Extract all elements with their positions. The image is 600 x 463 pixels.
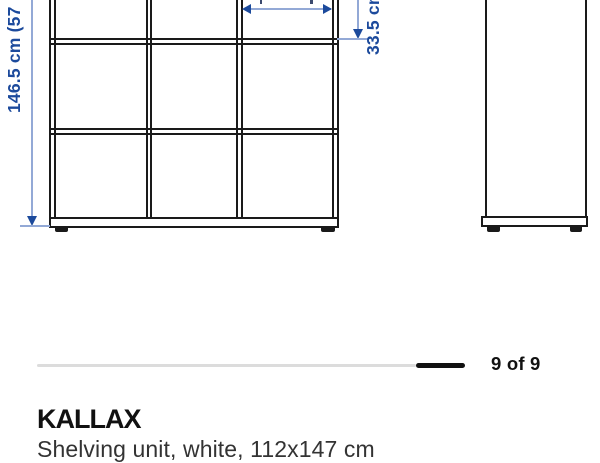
height-dimension-line bbox=[31, 0, 33, 221]
side-left-foot bbox=[487, 227, 500, 232]
height-dimension-label: 146.5 cm (57 ⅝ bbox=[4, 0, 25, 113]
front-column-divider-line bbox=[146, 0, 152, 219]
arrow-left-icon bbox=[242, 4, 251, 14]
side-panel-outline bbox=[485, 0, 587, 218]
side-right-foot bbox=[570, 227, 582, 232]
front-left-edge-line bbox=[49, 0, 56, 219]
progress-track bbox=[37, 364, 416, 367]
product-dimension-image[interactable]: 146.5 cm (57 ⅝ 33.5 cm bbox=[0, 0, 600, 340]
cropped-text-remnant bbox=[260, 0, 262, 4]
progress-active-segment bbox=[416, 363, 465, 368]
cropped-text-remnant bbox=[310, 0, 313, 4]
front-shelf-line bbox=[49, 38, 339, 45]
product-title: KALLAX bbox=[37, 404, 141, 435]
front-column-divider-line bbox=[236, 0, 243, 219]
front-right-foot bbox=[321, 227, 335, 232]
front-right-edge-line bbox=[332, 0, 339, 219]
front-left-foot bbox=[55, 227, 68, 232]
side-base-plinth bbox=[481, 216, 588, 227]
cell-width-dimension-line bbox=[245, 8, 331, 10]
arrow-right-icon bbox=[323, 4, 332, 14]
front-shelf-line bbox=[49, 128, 339, 135]
front-base-plinth bbox=[49, 217, 339, 228]
depth-dimension-line bbox=[357, 0, 359, 30]
height-dimension-tick bbox=[20, 225, 50, 227]
page-count-label: 9 of 9 bbox=[491, 353, 541, 375]
depth-dimension-label: 33.5 cm bbox=[363, 0, 384, 55]
